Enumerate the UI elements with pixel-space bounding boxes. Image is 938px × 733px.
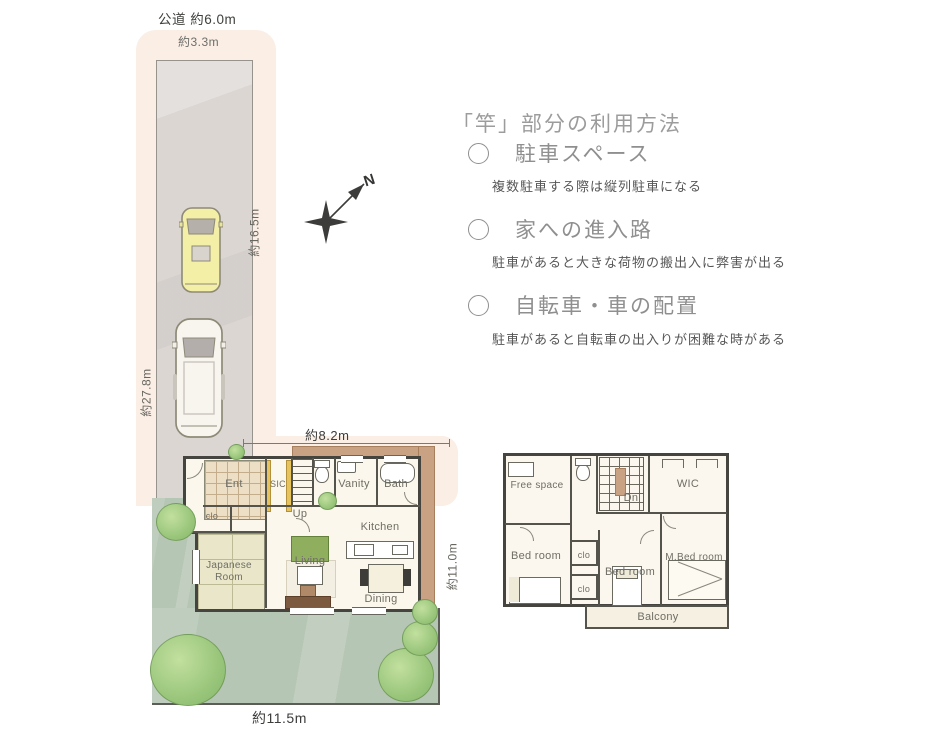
usage-note-parking: 複数駐車する際は縦列駐車になる — [492, 176, 702, 195]
dining-chair-left — [360, 569, 368, 586]
room-label-sic: SIC — [266, 479, 290, 489]
usage-item-label: 自転車・車の配置 — [515, 290, 699, 320]
window — [384, 455, 406, 463]
yellow-van-topview — [179, 206, 223, 294]
dimension-tick — [449, 439, 450, 447]
bush-near-entrance — [318, 492, 337, 510]
room-label-up: Up — [286, 508, 314, 521]
room-label-m-bedroom: M.Bed room — [660, 552, 728, 564]
floor1-depth-label: 約11.0m — [444, 535, 461, 599]
room-label-clo: clo — [198, 511, 226, 521]
site-plan-diagram: 公道 約6.0m 約3.3m 約16.5m 約27.8m N 「竿」部分の利用方… — [0, 0, 938, 733]
bed-left-pillow — [509, 577, 520, 602]
usage-item-label: 家への進入路 — [515, 214, 653, 244]
window — [290, 607, 334, 615]
dimension-tick — [243, 439, 244, 447]
freespace-desk — [508, 462, 534, 477]
toilet-2f-icon — [576, 464, 590, 481]
wic-hanger-right — [696, 459, 718, 468]
usage-item-bicycle: 自転車・車の配置 — [468, 290, 699, 320]
stairs-up — [292, 459, 313, 506]
stove-icon — [392, 545, 408, 555]
tree-bottom-left — [150, 634, 226, 706]
room-label-bedroom-center: Bed room — [600, 566, 660, 579]
partition — [312, 458, 314, 506]
room-label-clo-lower: clo — [571, 584, 597, 594]
room-label-japanese: Japanese Room — [200, 560, 258, 583]
partition — [505, 523, 571, 525]
room-label-clo-upper: clo — [571, 550, 597, 560]
partition — [230, 505, 232, 532]
wic-hanger-left — [662, 459, 684, 468]
living-table — [297, 566, 323, 585]
m-bed-quilt-lines — [668, 560, 724, 598]
room-label-bath: Bath — [376, 478, 416, 491]
window — [192, 550, 200, 584]
window — [352, 607, 386, 615]
bullet-circle-icon — [468, 295, 489, 316]
bush-bottom-right-large — [378, 648, 434, 702]
kitchen-sink — [354, 544, 374, 556]
partition — [648, 456, 650, 514]
partition — [291, 458, 293, 506]
partition — [203, 505, 420, 507]
road-dimension-label: 公道 約6.0m — [158, 8, 236, 28]
room-label-dn: Dn — [616, 492, 646, 505]
toilet-tank-2f — [575, 458, 591, 466]
room-label-living: Living — [290, 555, 330, 568]
floor1-width-label: 約8.2m — [305, 425, 349, 444]
usage-item-approach: 家への進入路 — [468, 214, 653, 244]
room-label-dining: Dining — [356, 593, 406, 606]
usage-note-approach: 駐車があると大きな荷物の搬出入に弊害が出る — [492, 252, 786, 271]
toilet-tank-1f — [314, 460, 330, 468]
toilet-1f-icon — [315, 466, 329, 483]
bush-bottom-right-mid — [402, 621, 438, 656]
usage-heading: 「竿」部分の利用方法 — [452, 108, 682, 138]
room-label-bedroom-left: Bed room — [506, 550, 566, 563]
bullet-circle-icon — [468, 143, 489, 164]
room-label-wic: WIC — [668, 478, 708, 491]
room-label-freespace: Free space — [506, 480, 568, 492]
bullet-circle-icon — [468, 219, 489, 240]
window — [341, 455, 363, 463]
dining-chair-right — [403, 569, 411, 586]
room-label-kitchen: Kitchen — [352, 521, 408, 534]
strip-right-length-label: 約16.5m — [246, 201, 263, 265]
bush-bottom-right-small — [412, 599, 438, 625]
lot-width-label: 約11.5m — [252, 708, 307, 728]
partition — [185, 531, 265, 533]
usage-note-bicycle: 駐車があると自転車の出入りが困難な時がある — [492, 329, 786, 348]
dining-table — [368, 564, 404, 593]
tree-top-left — [156, 503, 196, 541]
partition — [596, 456, 598, 514]
strip-width-label: 約3.3m — [178, 33, 219, 50]
room-label-balcony: Balcony — [628, 611, 688, 624]
usage-item-parking: 駐車スペース — [468, 138, 650, 168]
wall — [418, 456, 421, 612]
white-suv-topview — [172, 316, 226, 440]
room-label-vanity: Vanity — [332, 478, 376, 491]
room-label-ent: Ent — [216, 478, 252, 491]
usage-item-label: 駐車スペース — [515, 138, 650, 168]
strip-left-length-label: 約27.8m — [138, 361, 155, 425]
